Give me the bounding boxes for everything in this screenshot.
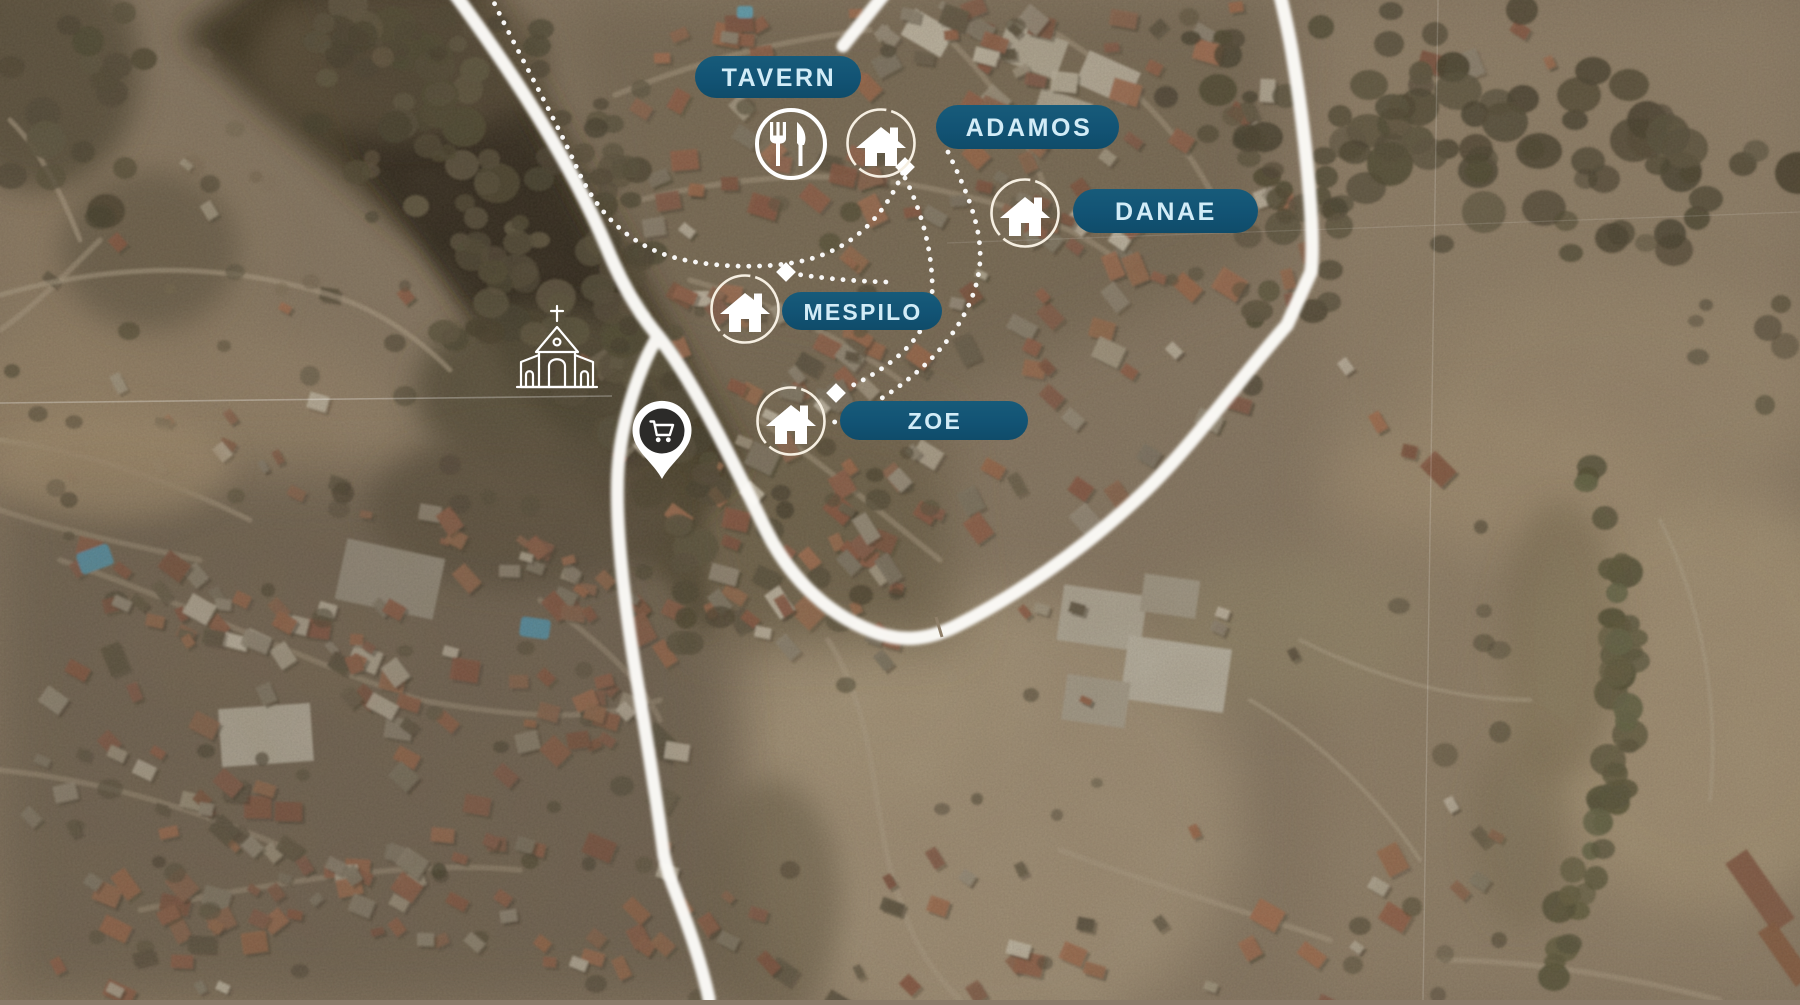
svg-text:ZOE: ZOE: [908, 408, 962, 434]
svg-text:DANAE: DANAE: [1115, 198, 1217, 226]
svg-text:ADAMOS: ADAMOS: [966, 114, 1093, 142]
svg-text:TAVERN: TAVERN: [722, 64, 837, 92]
svg-text:MESPILO: MESPILO: [804, 299, 923, 325]
